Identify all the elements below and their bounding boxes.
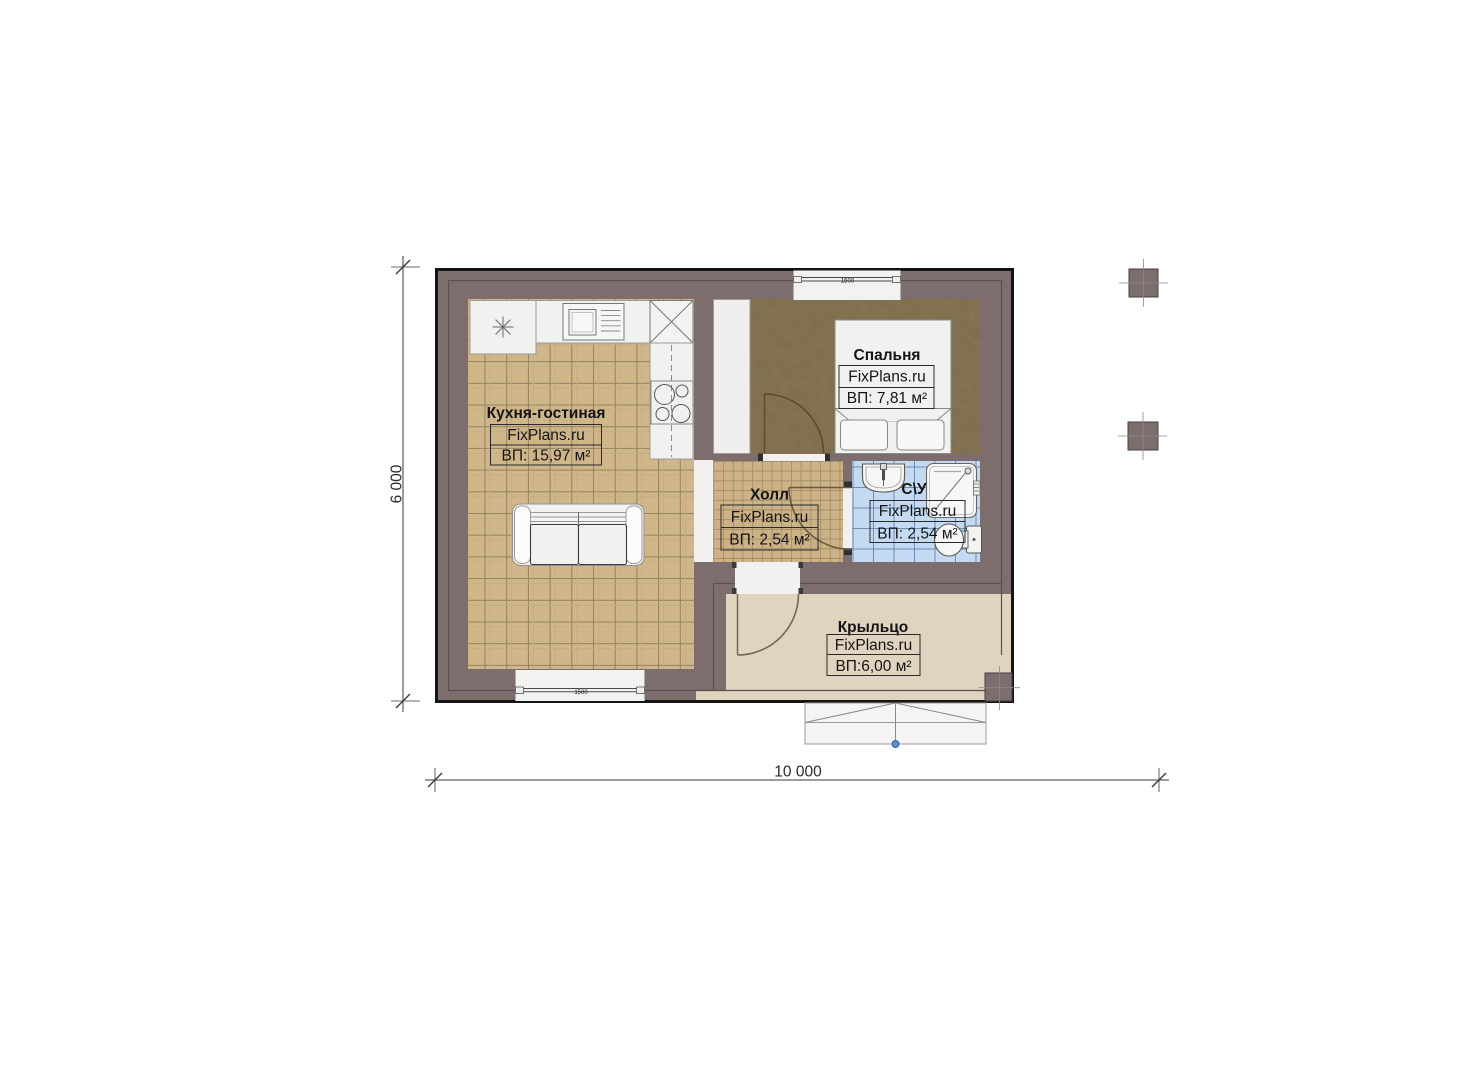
svg-text:Крыльцо: Крыльцо: [838, 619, 909, 636]
svg-text:ВП:6,00 м²: ВП:6,00 м²: [835, 658, 911, 675]
svg-text:Холл: Холл: [750, 487, 789, 504]
svg-text:FixPlans.ru: FixPlans.ru: [507, 427, 585, 444]
svg-text:1500: 1500: [574, 690, 588, 696]
svg-text:ВП: 15,97 м²: ВП: 15,97 м²: [501, 448, 590, 465]
svg-text:ВП: 2,54 м²: ВП: 2,54 м²: [877, 526, 957, 543]
svg-text:FixPlans.ru: FixPlans.ru: [879, 503, 957, 520]
svg-text:ВП: 7,81 м²: ВП: 7,81 м²: [847, 390, 927, 407]
svg-text:Спальня: Спальня: [854, 347, 921, 364]
svg-text:10 000: 10 000: [774, 764, 822, 781]
svg-text:FixPlans.ru: FixPlans.ru: [835, 637, 913, 654]
svg-text:FixPlans.ru: FixPlans.ru: [731, 509, 809, 526]
svg-text:ВП: 2,54 м²: ВП: 2,54 м²: [729, 532, 809, 549]
svg-text:1500: 1500: [841, 279, 855, 285]
svg-text:С\У: С\У: [901, 481, 927, 498]
svg-text:6 000: 6 000: [389, 464, 406, 503]
svg-text:Кухня-гостиная: Кухня-гостиная: [487, 405, 606, 422]
svg-text:FixPlans.ru: FixPlans.ru: [848, 369, 926, 386]
